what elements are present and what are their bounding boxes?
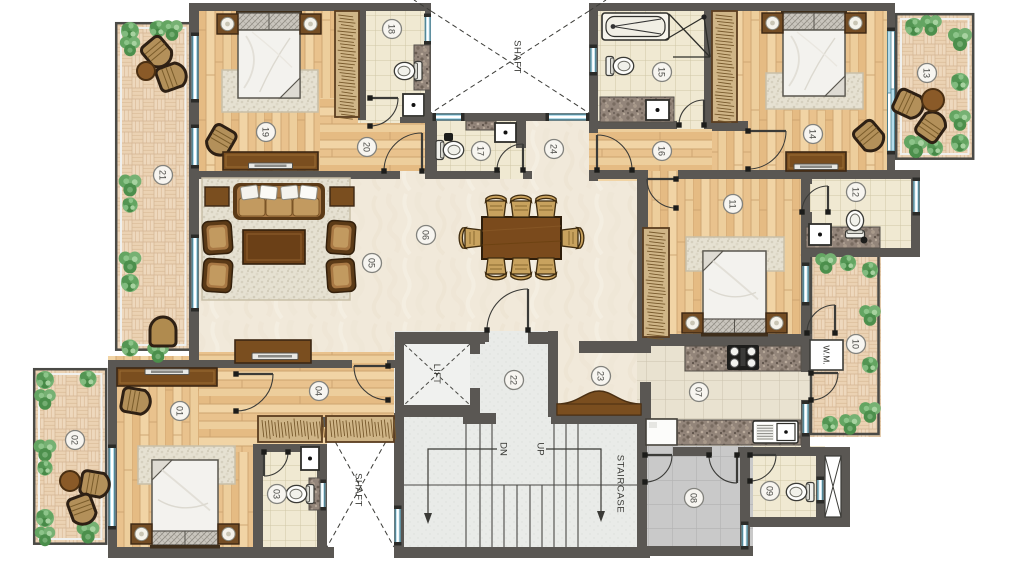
svg-text:22: 22 [509, 375, 519, 385]
svg-text:21: 21 [158, 170, 168, 180]
svg-text:SHAFT: SHAFT [512, 40, 523, 74]
svg-text:23: 23 [596, 371, 606, 381]
svg-text:18: 18 [387, 24, 397, 34]
svg-text:STAIRCASE: STAIRCASE [615, 455, 626, 514]
svg-text:UP: UP [535, 442, 546, 455]
svg-text:01: 01 [175, 406, 185, 416]
svg-text:12: 12 [851, 187, 861, 197]
svg-text:03: 03 [272, 489, 282, 499]
svg-text:W.M.: W.M. [822, 345, 832, 364]
svg-text:05: 05 [367, 258, 377, 268]
svg-text:10: 10 [851, 339, 861, 349]
svg-text:08: 08 [689, 493, 699, 503]
svg-text:19: 19 [261, 127, 271, 137]
svg-text:02: 02 [70, 435, 80, 445]
svg-text:20: 20 [362, 142, 372, 152]
svg-text:LIFT: LIFT [432, 364, 442, 385]
svg-text:SHAFT: SHAFT [353, 473, 364, 507]
svg-text:11: 11 [728, 199, 738, 208]
svg-text:06: 06 [421, 230, 431, 240]
svg-text:DN: DN [498, 442, 509, 456]
svg-text:07: 07 [694, 387, 704, 397]
svg-text:15: 15 [657, 67, 667, 77]
svg-text:16: 16 [657, 146, 667, 156]
svg-text:09: 09 [765, 486, 775, 496]
svg-text:04: 04 [314, 386, 324, 396]
svg-text:17: 17 [476, 146, 486, 156]
svg-text:24: 24 [549, 144, 559, 154]
svg-text:13: 13 [922, 68, 932, 78]
svg-text:14: 14 [808, 129, 818, 139]
